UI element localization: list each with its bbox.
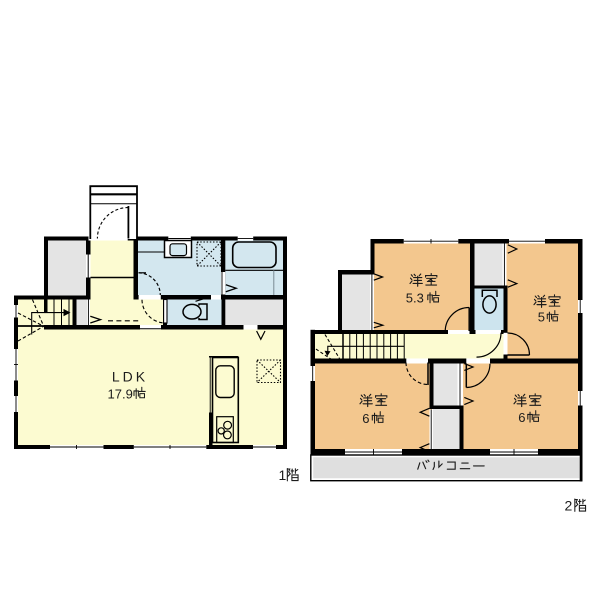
svg-text:17.9: 17.9 <box>108 386 133 401</box>
svg-text:5: 5 <box>538 309 545 324</box>
svg-text:6: 6 <box>518 410 525 425</box>
svg-text:1: 1 <box>279 467 287 483</box>
svg-text:LDK: LDK <box>112 369 148 385</box>
svg-text:6: 6 <box>362 411 369 426</box>
svg-text:5.3: 5.3 <box>406 291 424 306</box>
svg-text:2: 2 <box>565 498 573 514</box>
